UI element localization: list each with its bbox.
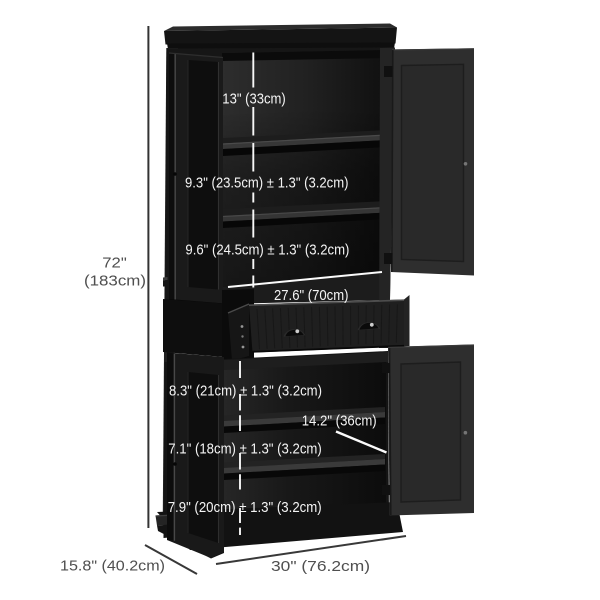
svg-text:14.2" (36cm): 14.2" (36cm) xyxy=(302,413,377,430)
svg-text:13" (33cm): 13" (33cm) xyxy=(222,91,285,108)
svg-text:30" (76.2cm): 30" (76.2cm) xyxy=(271,558,370,575)
svg-text:15.8" (40.2cm): 15.8" (40.2cm) xyxy=(60,558,165,575)
svg-text:72": 72" xyxy=(102,254,127,271)
svg-text:(183cm): (183cm) xyxy=(84,273,146,290)
svg-text:27.6" (70cm): 27.6" (70cm) xyxy=(274,287,349,304)
svg-text:7.1" (18cm) ± 1.3" (3.2cm): 7.1" (18cm) ± 1.3" (3.2cm) xyxy=(168,440,322,457)
svg-text:7.9" (20cm) ± 1.3" (3.2cm): 7.9" (20cm) ± 1.3" (3.2cm) xyxy=(168,499,322,516)
svg-text:8.3" (21cm) ± 1.3" (3.2cm): 8.3" (21cm) ± 1.3" (3.2cm) xyxy=(169,383,322,400)
svg-text:9.3" (23.5cm) ± 1.3" (3.2cm): 9.3" (23.5cm) ± 1.3" (3.2cm) xyxy=(185,174,349,191)
svg-text:9.6" (24.5cm) ± 1.3" (3.2cm): 9.6" (24.5cm) ± 1.3" (3.2cm) xyxy=(185,241,349,258)
